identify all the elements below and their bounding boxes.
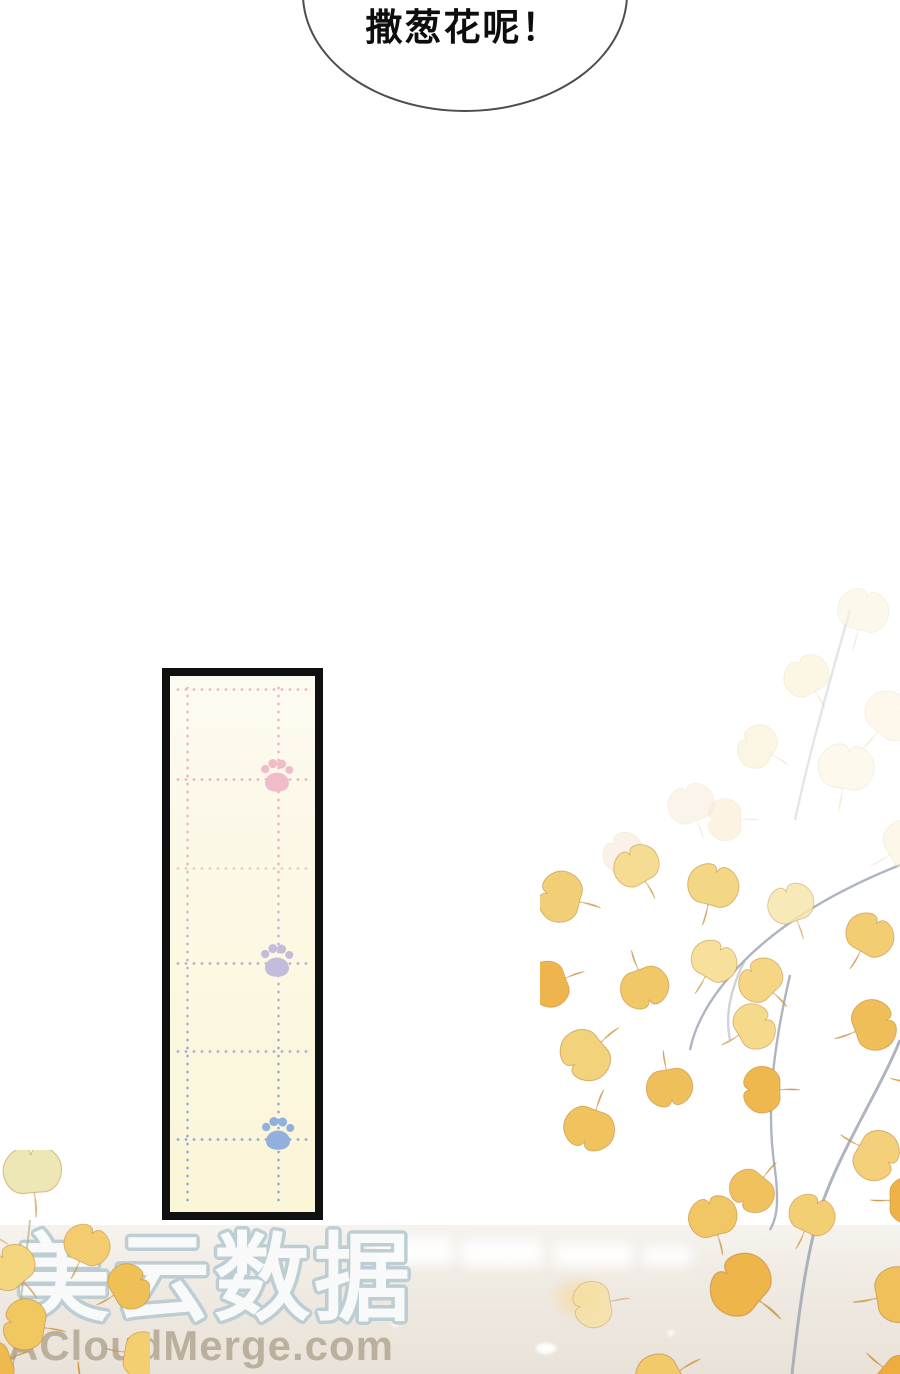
branch-lines xyxy=(690,610,900,1374)
grid-dotted-line-h1 xyxy=(174,688,311,691)
paw-note-panel xyxy=(162,668,323,1220)
ginkgo-branch-illustration xyxy=(540,570,900,1374)
gold-leaf-cluster xyxy=(0,1150,150,1374)
ginkgo-corner-illustration xyxy=(0,1150,150,1374)
ceiling-light xyxy=(460,1239,544,1267)
comic-page: 美云数据 ACloudMerge.com xyxy=(0,0,900,1374)
speech-bubble-text: 撒葱花呢！ xyxy=(302,6,624,50)
grid-dotted-line-h5 xyxy=(174,1050,311,1053)
grid-dotted-line-v1 xyxy=(186,684,189,1206)
branch-lines xyxy=(12,1220,30,1374)
paw-print-icon-blue xyxy=(258,1114,298,1151)
gold-leaf-cluster xyxy=(540,838,900,1374)
paw-print-icon-pink xyxy=(257,756,297,793)
grid-dotted-line-h3 xyxy=(174,867,311,870)
paw-print-icon-lavender xyxy=(257,941,297,978)
